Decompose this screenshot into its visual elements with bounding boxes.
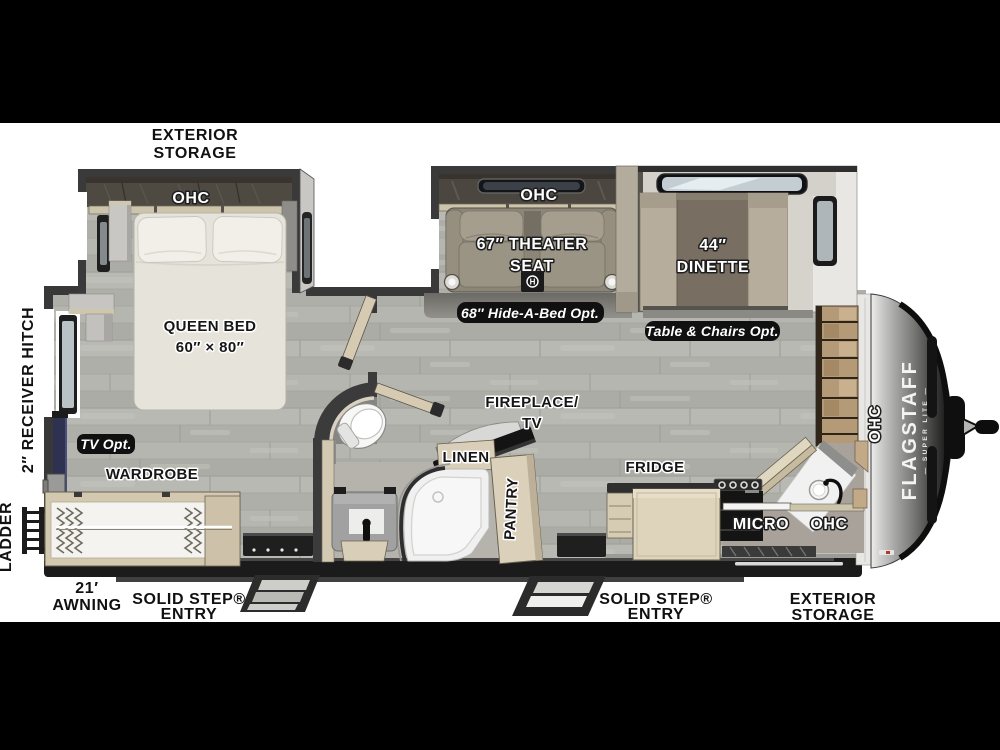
svg-text:SEAT: SEAT: [510, 258, 554, 275]
svg-text:AWNING: AWNING: [52, 597, 121, 614]
svg-text:FIREPLACE/: FIREPLACE/: [485, 394, 579, 411]
svg-text:MICRO: MICRO: [733, 516, 789, 533]
svg-text:H: H: [530, 278, 536, 287]
svg-text:DINETTE: DINETTE: [677, 259, 750, 276]
svg-text:Table & Chairs Opt.: Table & Chairs Opt.: [645, 323, 778, 339]
svg-text:60″ × 80″: 60″ × 80″: [176, 339, 244, 356]
svg-text:TV: TV: [522, 415, 542, 432]
svg-text:ENTRY: ENTRY: [628, 606, 685, 623]
svg-text:STORAGE: STORAGE: [791, 607, 874, 624]
svg-text:TV Opt.: TV Opt.: [80, 436, 131, 452]
svg-text:FLAGSTAFF: FLAGSTAFF: [899, 360, 921, 501]
svg-text:— SUPER LITE —: — SUPER LITE —: [922, 386, 929, 475]
svg-text:67″ THEATER: 67″ THEATER: [477, 236, 588, 253]
svg-text:OHC: OHC: [867, 405, 884, 442]
svg-text:STORAGE: STORAGE: [153, 145, 236, 162]
svg-text:68″ Hide-A-Bed Opt.: 68″ Hide-A-Bed Opt.: [461, 305, 599, 321]
svg-text:EXTERIOR: EXTERIOR: [152, 127, 239, 144]
svg-text:OHC: OHC: [810, 516, 847, 533]
svg-text:FRIDGE: FRIDGE: [625, 459, 684, 476]
svg-text:EXTERIOR: EXTERIOR: [790, 591, 877, 608]
svg-text:QUEEN BED: QUEEN BED: [164, 318, 257, 335]
svg-text:21′: 21′: [75, 580, 98, 597]
svg-text:WARDROBE: WARDROBE: [106, 466, 198, 483]
svg-text:OHC: OHC: [520, 187, 557, 204]
svg-text:2″ RECEIVER HITCH: 2″ RECEIVER HITCH: [20, 307, 37, 473]
svg-text:OHC: OHC: [172, 190, 209, 207]
svg-text:PANTRY: PANTRY: [501, 477, 521, 540]
svg-text:LADDER: LADDER: [0, 502, 15, 572]
svg-text:ENTRY: ENTRY: [161, 606, 218, 623]
svg-text:44″: 44″: [699, 237, 726, 254]
